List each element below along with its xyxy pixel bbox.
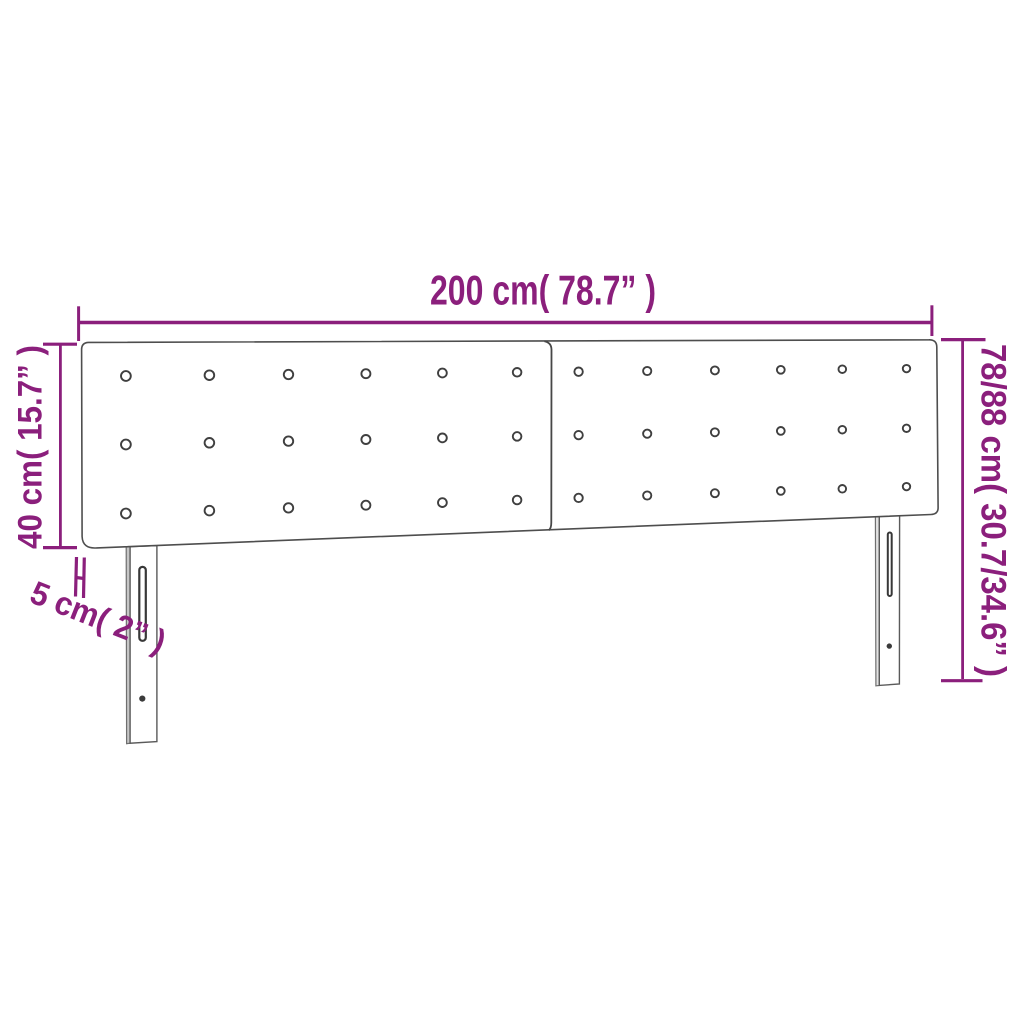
svg-text:200 cm( 78.7” ): 200 cm( 78.7” ) [430, 267, 656, 314]
svg-text:40 cm( 15.7” ): 40 cm( 15.7” ) [12, 345, 50, 549]
svg-text:78/88 cm( 30.7/34.6” ): 78/88 cm( 30.7/34.6” ) [974, 344, 1013, 677]
